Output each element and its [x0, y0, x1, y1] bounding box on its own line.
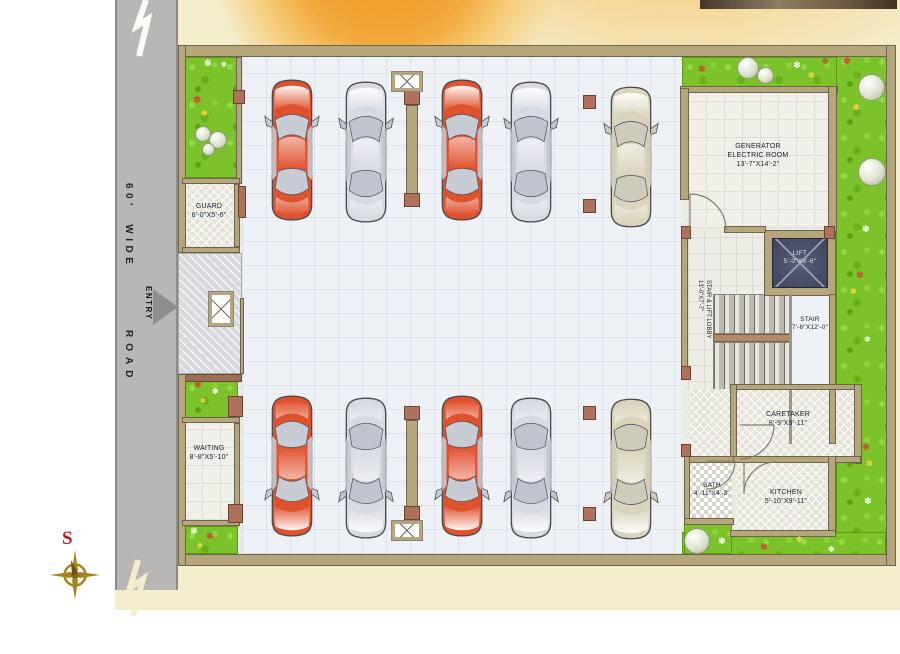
compass-rose-icon: [50, 550, 100, 600]
gate-icon: [392, 72, 422, 91]
bush-icon: [858, 158, 886, 186]
floor-plan-page: 60' WIDE ENTRY ROAD: [0, 0, 900, 654]
bush-icon: [757, 67, 774, 84]
room-dims: 6'-0"X5'-6": [180, 211, 238, 220]
wall-segment: [684, 456, 734, 463]
waiting-room-label: WAITING 8'-8"X5'-10": [180, 444, 238, 462]
room-name: GUARD: [180, 202, 238, 211]
column-marker: [404, 406, 420, 420]
bush-icon: [202, 143, 215, 156]
wall-segment: [182, 178, 240, 184]
compass-south-label: S: [62, 528, 73, 550]
column-marker: [404, 91, 420, 105]
lift-label: LIFT 5'-0"X6'-6": [764, 250, 836, 267]
car-beige: [601, 84, 661, 230]
room-dims: 8'-9"X9'-11": [733, 419, 843, 428]
column-marker: [583, 199, 596, 213]
bush-icon: [737, 57, 759, 79]
bath-room-label: BATH 4'-11"X4'-3": [686, 482, 738, 499]
room-name: GENERATOR ELECTRIC ROOM: [726, 142, 790, 160]
wall-segment: [854, 384, 862, 464]
wall-right: [886, 45, 896, 566]
room-dims: 5'-10"X9'-11": [740, 497, 832, 506]
flower-icon: ✽: [718, 538, 726, 547]
flower-icon: ✽: [698, 66, 706, 75]
road-width-label: 60' WIDE: [123, 183, 134, 268]
column-marker: [233, 90, 245, 104]
pillar-shaft: [406, 420, 418, 507]
wall-segment: [681, 233, 688, 367]
floor-waiting: [184, 423, 234, 520]
flower-icon: ✽: [193, 96, 201, 106]
flower-icon: ✽: [822, 58, 829, 66]
wall-segment: [182, 417, 240, 423]
flower-icon: ✽: [760, 544, 768, 553]
room-dims: 8'-8"X5'-10": [180, 453, 238, 462]
flower-icon: ✽: [190, 528, 198, 537]
car-silver: [501, 74, 561, 230]
room-name: BATH: [686, 482, 738, 490]
guard-room-label: GUARD 6'-0"X5'-6": [180, 202, 238, 220]
room-dims: 5'-0"X6'-6": [764, 258, 836, 266]
car-red: [432, 72, 492, 228]
column-marker: [681, 444, 691, 457]
flower-icon: ✽: [843, 58, 851, 67]
wall-segment: [736, 384, 856, 390]
flower-icon: ✽: [197, 543, 203, 550]
room-dims: 4'-11"X4'-3": [686, 490, 738, 498]
flower-icon: ✽: [862, 226, 870, 235]
generator-room-label: GENERATOR ELECTRIC ROOM 13'-7"X14'-2": [726, 142, 790, 169]
wall-segment: [680, 86, 838, 93]
wall-bottom: [178, 554, 896, 566]
flower-icon: ✽: [828, 546, 835, 554]
gate-icon: [392, 521, 422, 540]
flower-icon: ✽: [808, 72, 815, 80]
flower-icon: ✽: [850, 288, 857, 296]
driveway-end-wall: [178, 374, 242, 382]
road-label: ROAD: [123, 330, 134, 383]
photo-strip: [700, 0, 897, 9]
lobby-label: STAIR & LIFT LOBBY 13'-0"X7'-7": [696, 280, 712, 338]
flower-icon: ✽: [201, 110, 208, 118]
room-name: STAIR & LIFT LOBBY: [704, 280, 712, 338]
car-red: [432, 388, 492, 544]
wall-segment: [730, 456, 861, 463]
flower-icon: ✽: [200, 398, 206, 405]
column-marker: [583, 95, 596, 109]
pillar-shaft: [406, 105, 418, 194]
column-marker: [404, 506, 420, 520]
car-beige: [601, 396, 661, 542]
guard-door-leaf: [238, 186, 246, 218]
room-dims: 7'-6"X12'-0": [787, 324, 833, 332]
flower-icon: ✽: [204, 60, 212, 69]
column-marker: [583, 507, 596, 521]
wall-top: [178, 45, 896, 57]
wall-segment: [182, 247, 240, 253]
room-name: WAITING: [180, 444, 238, 453]
car-red: [262, 72, 322, 228]
car-silver: [336, 390, 396, 546]
wall-left-lower: [178, 374, 186, 566]
wall-segment: [680, 88, 689, 200]
flower-icon: ✽: [866, 460, 873, 468]
stair-landing: [713, 334, 791, 342]
room-name: KITCHEN: [740, 488, 832, 497]
wall-segment: [240, 298, 244, 374]
wall-segment: [724, 226, 766, 233]
flower-icon: ✽: [221, 62, 227, 69]
column-marker: [824, 226, 835, 239]
garden-left-top: [184, 57, 238, 178]
wall-segment: [828, 86, 837, 232]
column-marker: [681, 366, 691, 380]
car-silver: [501, 390, 561, 546]
flower-icon: ✽: [864, 498, 872, 507]
flower-icon: ✽: [793, 62, 801, 71]
flower-icon: ✽: [864, 336, 871, 344]
car-red: [262, 388, 322, 544]
flower-icon: ✽: [856, 272, 864, 281]
wall-left-upper: [178, 45, 186, 253]
room-dims: 13'-0"X7'-7": [696, 280, 704, 338]
flower-icon: ✽: [206, 533, 214, 542]
flower-icon: ✽: [853, 104, 860, 112]
kitchen-room-label: KITCHEN 5'-10"X9'-11": [740, 488, 832, 506]
wall-segment: [730, 530, 836, 537]
stair-flight-upper: [713, 294, 791, 334]
room-dims: 13'-7"X14'-2": [726, 160, 790, 169]
column-marker: [404, 193, 420, 207]
room-name: CARETAKER: [733, 410, 843, 419]
flower-icon: ✽: [796, 536, 803, 544]
column-marker: [228, 504, 243, 523]
car-silver: [336, 74, 396, 230]
bush-icon: [858, 74, 885, 101]
wall-segment: [684, 518, 734, 525]
column-marker: [681, 226, 691, 239]
column-marker: [228, 396, 243, 417]
flower-icon: ✽: [862, 444, 870, 453]
wall-segment: [236, 57, 242, 184]
stair-label: STAIR 7'-6"X12'-0": [787, 316, 833, 333]
room-name: STAIR: [787, 316, 833, 324]
flower-icon: ✽: [212, 388, 219, 396]
entry-label: ENTRY: [144, 286, 153, 320]
entry-gate-icon: [209, 292, 233, 326]
caretaker-room-label: CARETAKER 8'-9"X9'-11": [733, 410, 843, 428]
bush-icon: [684, 528, 710, 554]
column-marker: [583, 406, 596, 420]
flower-icon: ✽: [194, 382, 202, 391]
room-name: LIFT: [764, 250, 836, 258]
entry-arrow-icon: [153, 289, 178, 325]
garden-right: [836, 52, 888, 556]
